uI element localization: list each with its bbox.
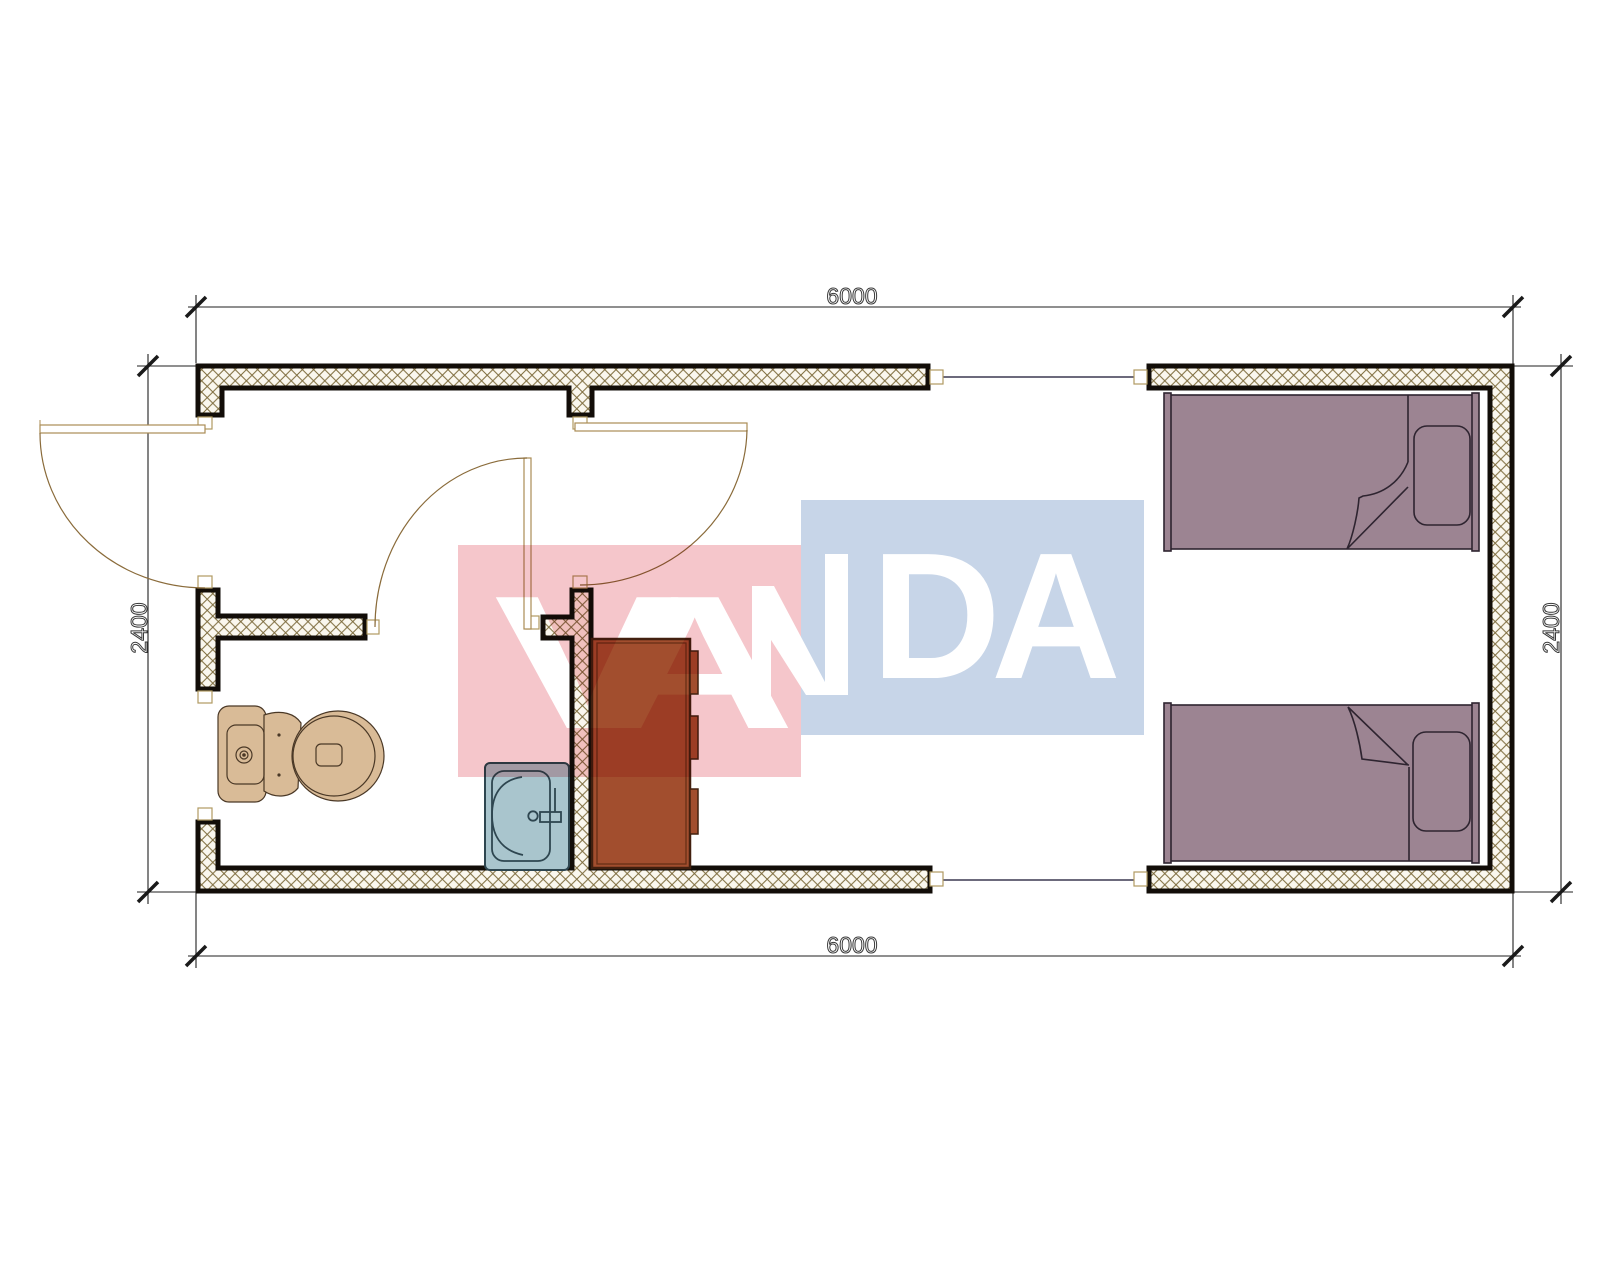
svg-text:6000: 6000 <box>826 283 877 309</box>
svg-text:6000: 6000 <box>826 932 877 958</box>
svg-text:2400: 2400 <box>126 602 152 653</box>
svg-text:2400: 2400 <box>1538 602 1564 653</box>
